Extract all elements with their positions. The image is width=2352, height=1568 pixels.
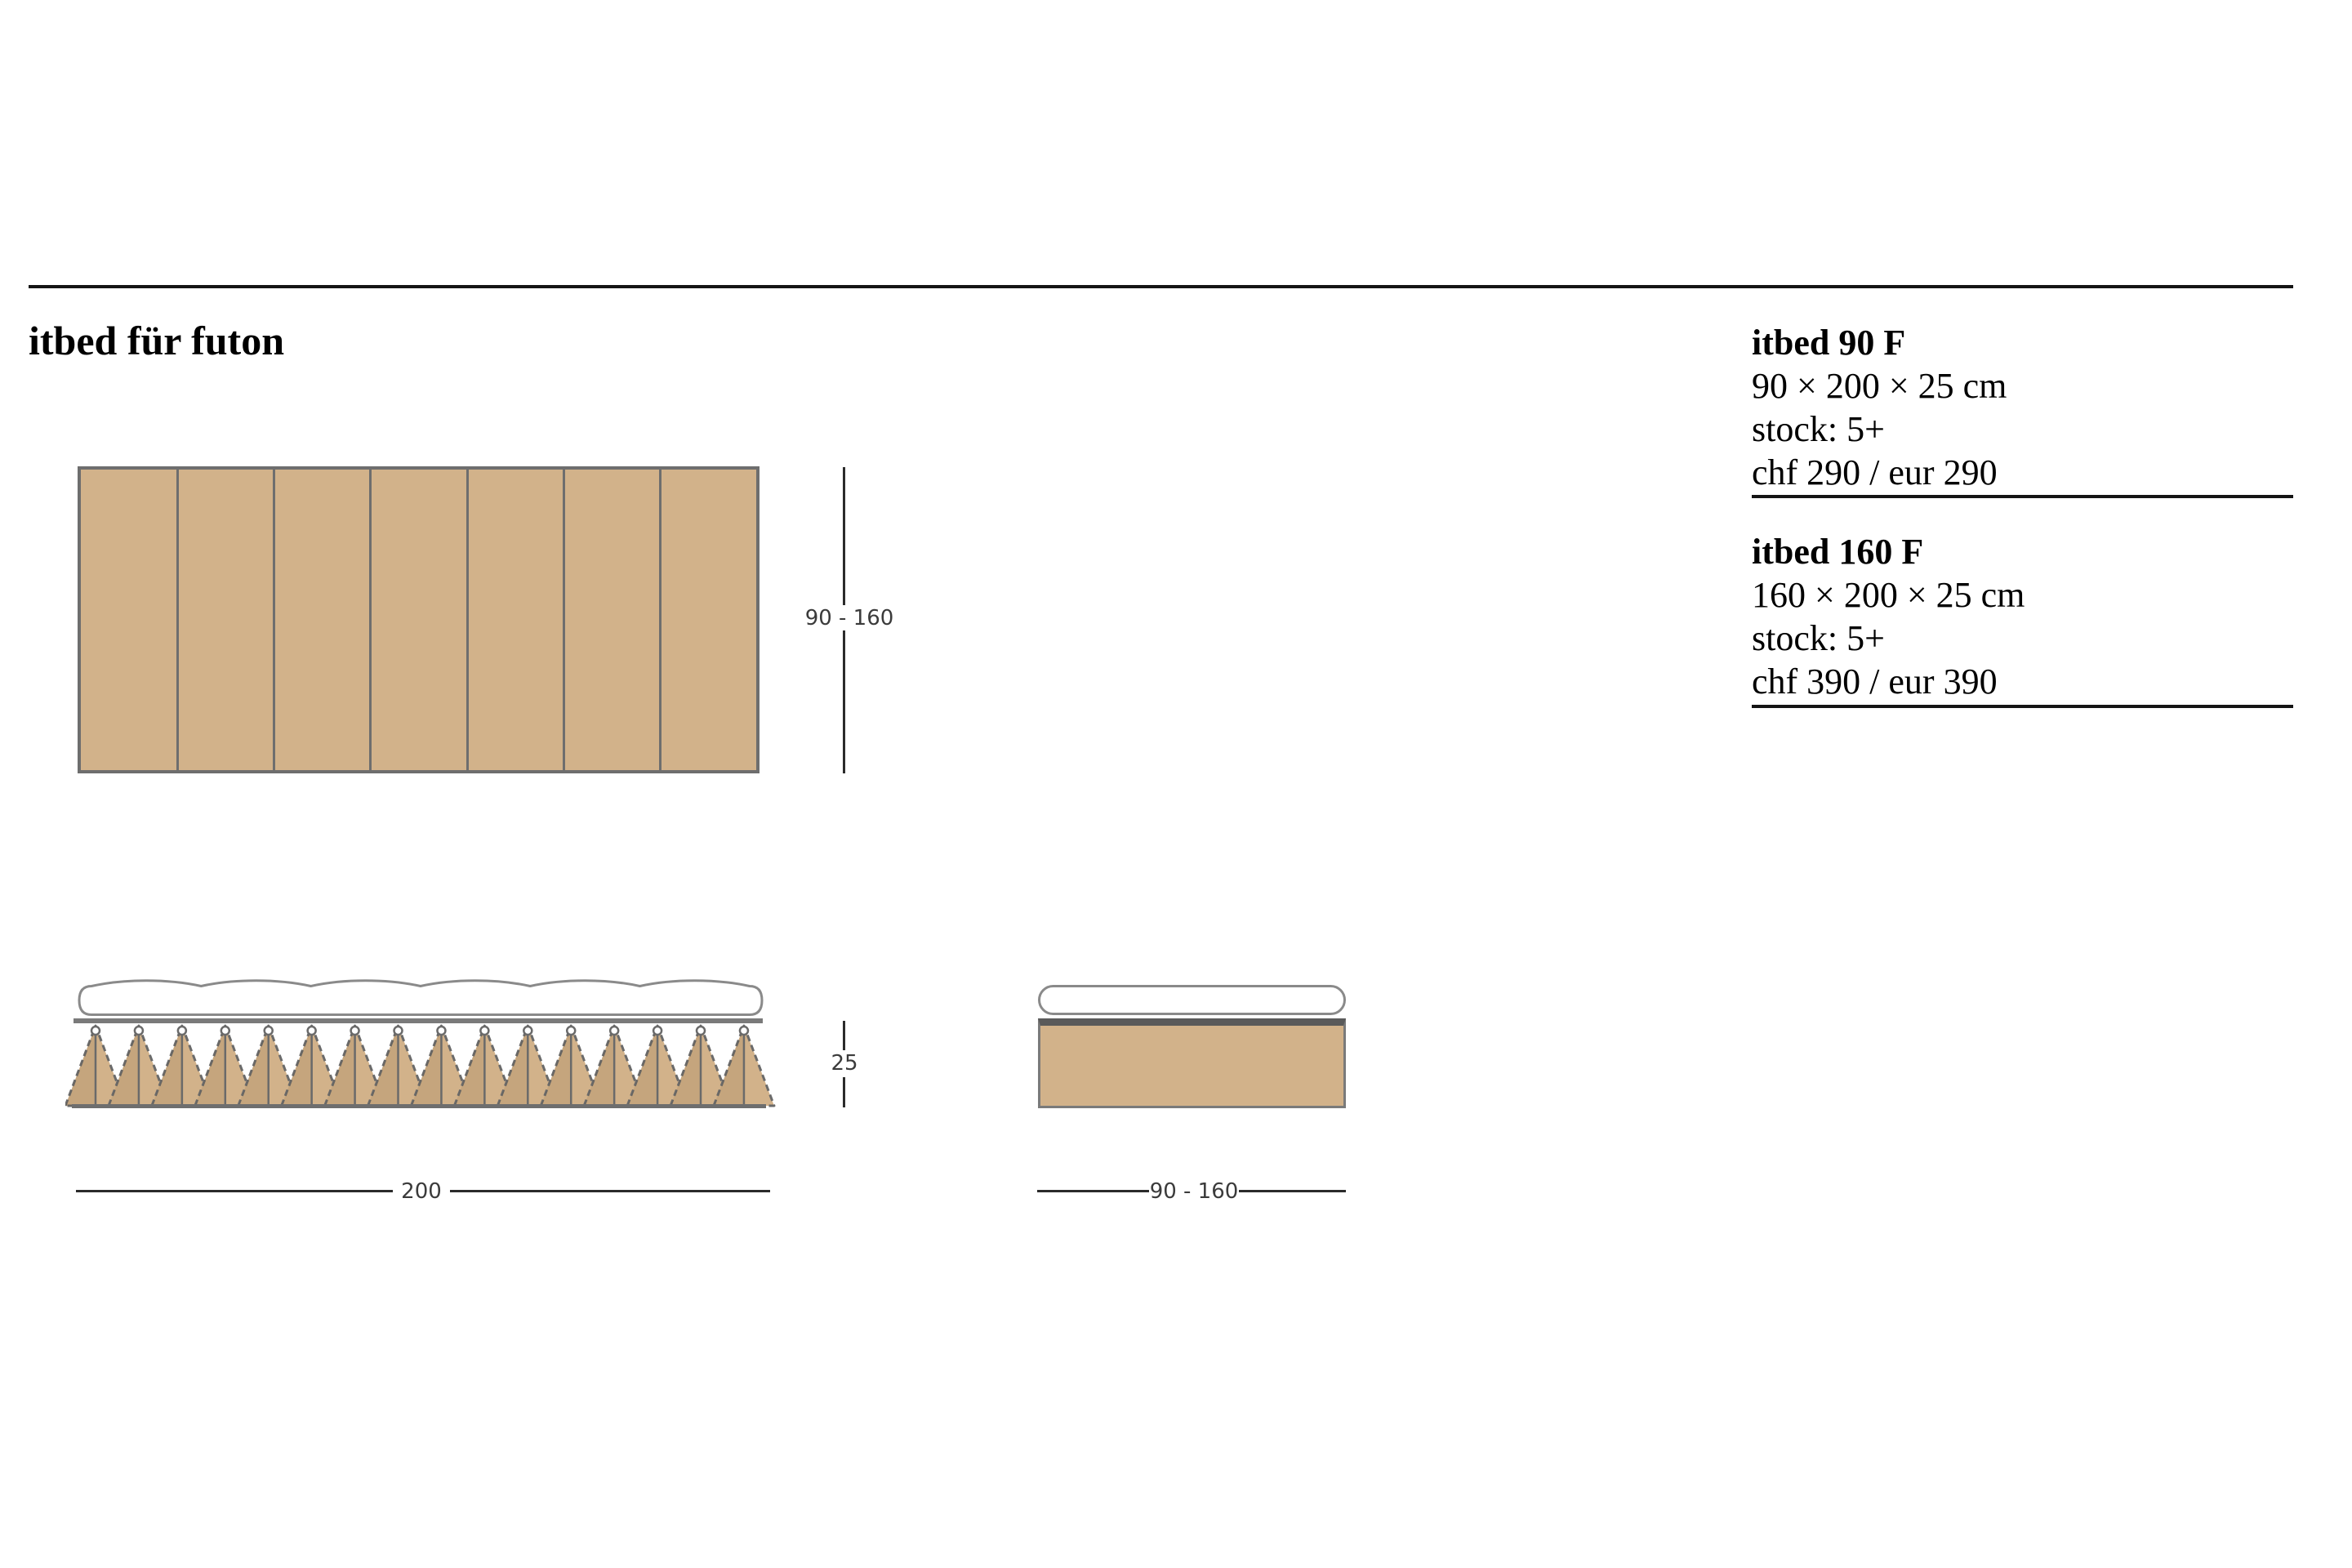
spring-eyelet xyxy=(135,1027,143,1035)
slat-divider xyxy=(563,470,565,770)
spring-eyelet xyxy=(610,1027,618,1035)
slat-divider xyxy=(466,470,469,770)
slat-divider xyxy=(659,470,661,770)
slat-divider xyxy=(273,470,275,770)
spring-eyelet xyxy=(697,1027,705,1035)
slat-rail xyxy=(73,1018,763,1023)
dimension-line-segment xyxy=(76,1190,393,1192)
spring-shade xyxy=(65,1026,96,1106)
spring-shade xyxy=(368,1026,399,1106)
dimension-line-segment xyxy=(843,1021,845,1050)
dimension-label: 90 - 160 xyxy=(1150,1181,1239,1202)
spring-shade xyxy=(627,1026,657,1106)
dimension-line-segment xyxy=(843,467,845,605)
dimension-label: 90 - 160 xyxy=(805,608,894,629)
product-card: itbed 160 F 160 × 200 × 25 cm stock: 5+ … xyxy=(1752,530,2307,703)
spring-eyelet xyxy=(394,1027,403,1035)
divider-rule xyxy=(1752,705,2293,708)
spring-shade xyxy=(670,1026,701,1106)
spring-eyelet xyxy=(567,1027,575,1035)
spring-eyelet xyxy=(351,1027,359,1035)
slat-divider xyxy=(369,470,372,770)
product-name: itbed 160 F xyxy=(1752,530,2307,573)
spring-eyelet xyxy=(740,1027,748,1035)
catalog-page: itbed für futon 90 - 160 25 200 xyxy=(0,0,2352,1568)
spring-shade xyxy=(152,1026,182,1106)
spring-eyelet xyxy=(178,1027,186,1035)
dimension-label: 25 xyxy=(831,1053,857,1074)
spring-eyelet xyxy=(91,1027,100,1035)
product-price: chf 290 / eur 290 xyxy=(1752,451,2307,494)
base-line xyxy=(72,1104,766,1108)
spring-shade xyxy=(325,1026,355,1106)
product-dimensions: 160 × 200 × 25 cm xyxy=(1752,573,2307,617)
dimension-line-segment xyxy=(1037,1190,1149,1192)
slat-divider xyxy=(176,470,179,770)
mattress-side xyxy=(79,981,762,1015)
product-dimensions: 90 × 200 × 25 cm xyxy=(1752,364,2307,408)
product-card: itbed 90 F 90 × 200 × 25 cm stock: 5+ ch… xyxy=(1752,321,2307,494)
side-view-springs xyxy=(65,1026,774,1106)
spring-eyelet xyxy=(523,1027,532,1035)
spring-eyelet xyxy=(480,1027,488,1035)
dimension-line-segment xyxy=(843,630,845,773)
spring-shade xyxy=(195,1026,225,1106)
divider-rule xyxy=(1752,495,2293,498)
spring-shade xyxy=(584,1026,614,1106)
product-stock: stock: 5+ xyxy=(1752,617,2307,660)
product-name: itbed 90 F xyxy=(1752,321,2307,364)
dimension-line-segment xyxy=(1239,1190,1346,1192)
spring-shade xyxy=(282,1026,312,1106)
spring-shade xyxy=(714,1026,744,1106)
mattress-end xyxy=(1038,985,1346,1015)
page-title: itbed für futon xyxy=(29,320,284,361)
dimension-line-segment xyxy=(843,1077,845,1107)
spring-shade xyxy=(497,1026,528,1106)
spring-eyelet xyxy=(653,1027,661,1035)
spring-eyelet xyxy=(308,1027,316,1035)
futon-top-view xyxy=(78,466,759,773)
spring-shade xyxy=(411,1026,441,1106)
futon-side-view xyxy=(65,976,784,1119)
top-rule xyxy=(29,285,2293,288)
spring-eyelet xyxy=(221,1027,229,1035)
spring-eyelet xyxy=(437,1027,445,1035)
spring-shade xyxy=(109,1026,139,1106)
spring-shade xyxy=(541,1026,571,1106)
product-stock: stock: 5+ xyxy=(1752,408,2307,451)
dimension-line-segment xyxy=(450,1190,770,1192)
product-price: chf 390 / eur 390 xyxy=(1752,660,2307,703)
spring-shade xyxy=(238,1026,269,1106)
dimension-label: 200 xyxy=(401,1181,442,1202)
futon-base-end xyxy=(1038,1018,1346,1108)
spring-shade xyxy=(454,1026,484,1106)
spring-eyelet xyxy=(265,1027,273,1035)
